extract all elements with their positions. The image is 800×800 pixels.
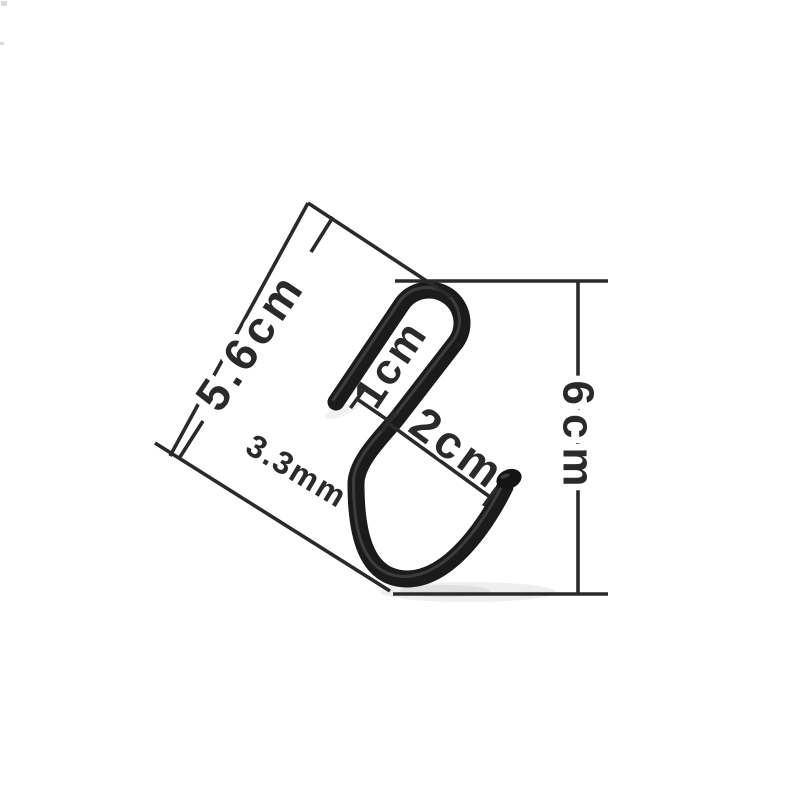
dimension-labels: 5.6cm 1cm 2cm 3.3mm 6cm (185, 262, 603, 515)
label-3-3mm: 3.3mm (240, 427, 354, 515)
label-5-6cm: 5.6cm (185, 262, 315, 420)
tick-top (311, 217, 333, 252)
label-6cm: 6cm (554, 380, 603, 495)
s-hook-dimension-diagram: 5.6cm 1cm 2cm 3.3mm 6cm (0, 0, 800, 800)
corner-speck (0, 42, 4, 45)
extension-line-top (308, 203, 451, 297)
corner-speck (1, 1, 7, 6)
photo-artifacts (0, 1, 7, 45)
tick-bottom (180, 421, 203, 457)
product-photo-canvas: 5.6cm 1cm 2cm 3.3mm 6cm (0, 0, 800, 800)
